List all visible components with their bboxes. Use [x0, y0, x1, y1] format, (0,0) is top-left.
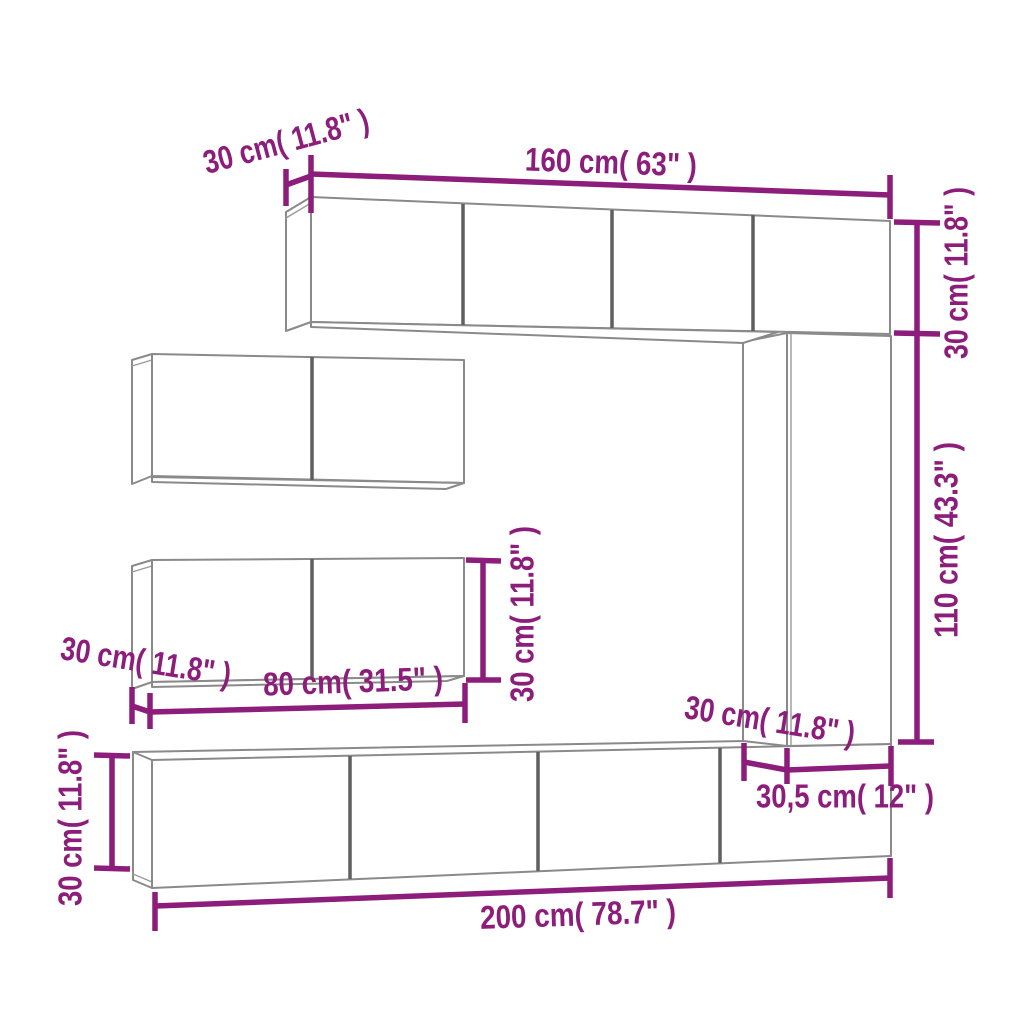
- bottom-cabinet-front-face: [152, 744, 891, 888]
- midheight-tick-top: [466, 560, 501, 561]
- wall-cabinet-middle-left: [132, 354, 464, 489]
- bottomheight-tick-top: [94, 755, 130, 756]
- furniture-dimension-drawing: 30 cm( 11.8" ) 160 cm( 63" ) 30 cm( 11.8…: [0, 0, 1024, 1024]
- column-front-face: [787, 333, 891, 746]
- dim-label-top-height: 30 cm( 11.8" ): [938, 187, 975, 359]
- right-height-tick-top: [894, 222, 940, 223]
- width80-line: [150, 704, 465, 712]
- diagram-canvas: 30 cm( 11.8" ) 160 cm( 63" ) 30 cm( 11.8…: [0, 0, 1024, 1024]
- dimension-middle-height-30: [466, 560, 501, 680]
- tv-stand-bottom-cabinet: [133, 741, 891, 888]
- dim-label-column-height: 110 cm( 43.3" ): [928, 442, 965, 638]
- wall-cabinet-top: [286, 197, 890, 343]
- top-cabinet-front-face: [311, 197, 890, 334]
- dim-label-top-depth: 30 cm( 11.8" ): [199, 101, 373, 181]
- bottomheight-tick-bottom: [94, 868, 130, 869]
- tall-column-cabinet: [743, 333, 891, 746]
- dim-label-left-height: 30 cm( 11.8" ): [504, 526, 541, 702]
- dim-label-bottom-width: 200 cm( 78.7" ): [479, 892, 676, 936]
- dim-label-top-width: 160 cm( 63" ): [524, 141, 697, 184]
- middle-cabinet-front-face: [152, 354, 464, 483]
- right-height-tick-middle: [894, 333, 940, 334]
- dim-label-left-width: 80 cm( 31.5" ): [262, 659, 443, 702]
- top-cabinet-side-panel: [286, 197, 311, 331]
- dim-label-column-width: 30,5 cm( 12" ): [756, 778, 934, 815]
- bottom-cabinet-side-panel: [133, 752, 152, 888]
- dimension-bottom-height-30: [94, 755, 130, 869]
- middle-cabinet-side-panel: [132, 354, 152, 484]
- column-side-panel: [743, 333, 787, 746]
- dim-label-bottom-height: 30 cm( 11.8" ): [52, 730, 89, 906]
- top-depth-connector: [286, 176, 311, 185]
